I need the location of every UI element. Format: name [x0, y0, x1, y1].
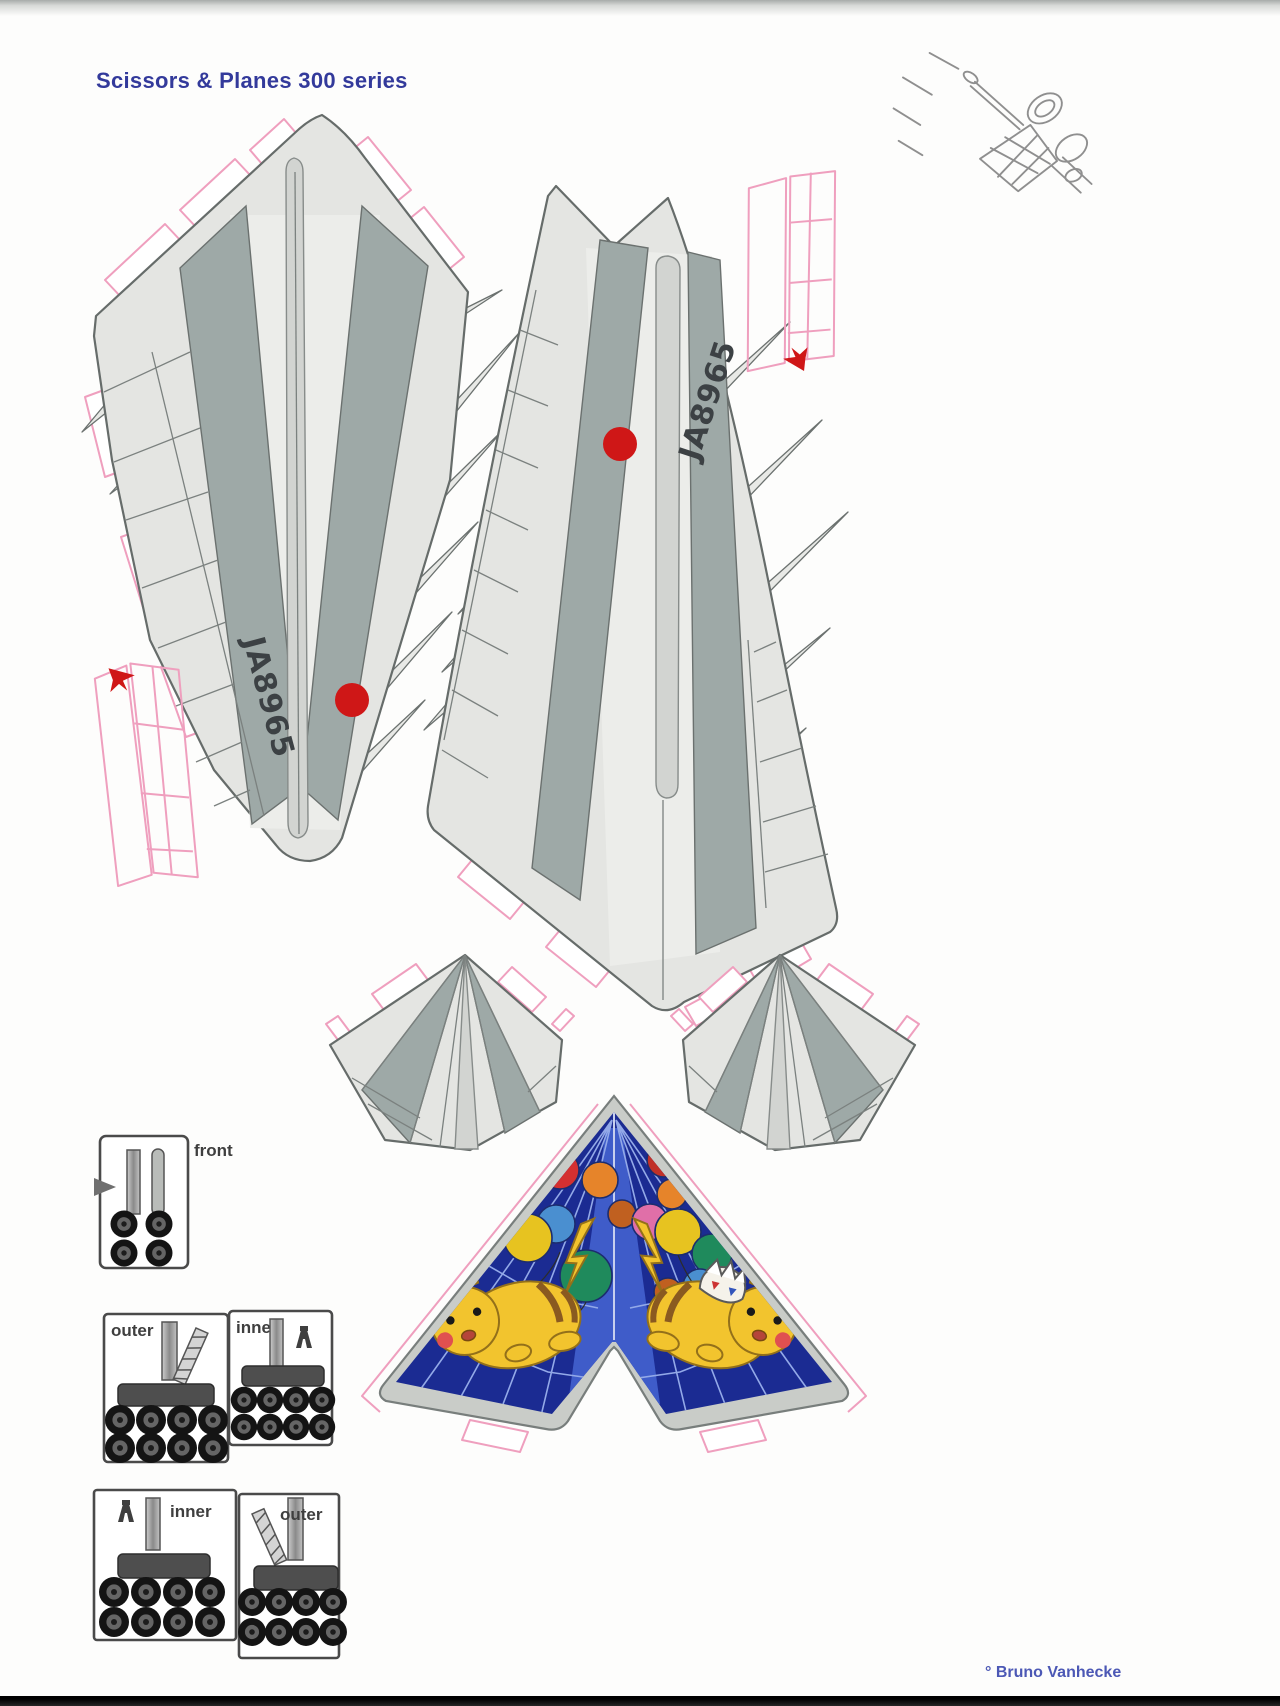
parts-box-outer-bottom-label: outer [280, 1505, 323, 1524]
red-dot-marker-left [335, 683, 369, 717]
parts-box-inner-bottom: inner [94, 1490, 236, 1640]
red-arrow-marker-right [782, 345, 807, 371]
parts-box-outer-bottom: outer [238, 1494, 347, 1658]
parts-box-outer-top: outer [104, 1314, 228, 1463]
scissors-plane-logo-icon [894, 53, 1093, 193]
parts-box-front-label: front [194, 1141, 233, 1160]
page-bottom-edge [0, 1696, 1280, 1706]
red-dot-marker-right [603, 427, 637, 461]
parts-box-inner-bottom-label: inner [170, 1502, 212, 1521]
wing-fan-left [326, 955, 574, 1150]
papercraft-sheet-page: Scissors & Planes 300 series ° Bruno Van… [0, 0, 1280, 1706]
parts-box-outer-top-label: outer [111, 1321, 154, 1340]
papercraft-diagram: JA8965 [0, 0, 1280, 1706]
tab-strip-piece-top-right [730, 162, 853, 380]
parts-box-front: front [94, 1136, 233, 1268]
parts-box-inner-top: inner [229, 1311, 335, 1445]
